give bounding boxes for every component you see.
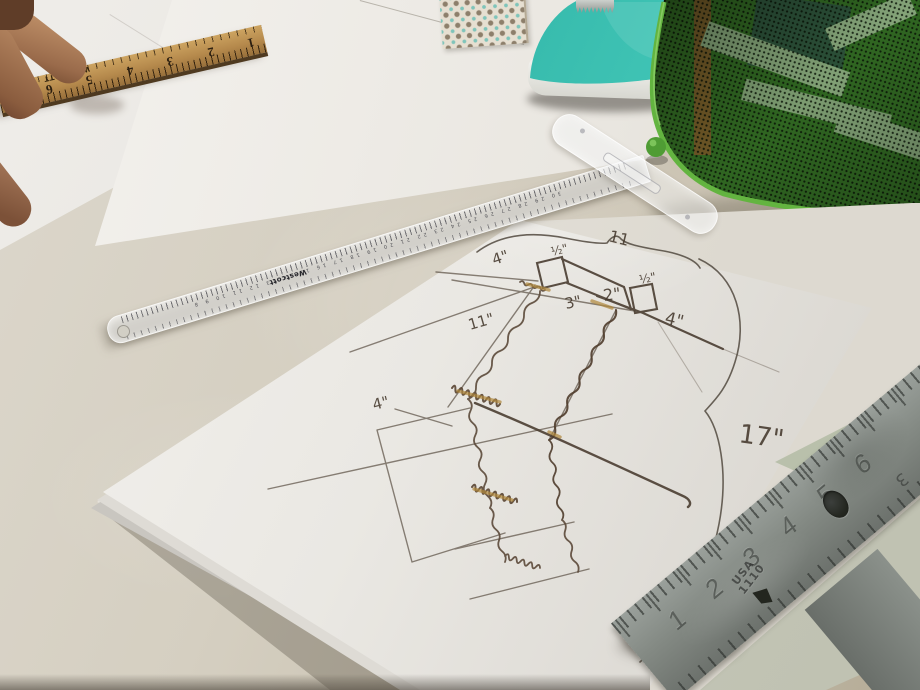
- label-half-inch-right: ½": [638, 270, 658, 287]
- label-top-total: 11: [607, 226, 631, 249]
- label-total-length: 17": [737, 419, 786, 455]
- wavy-cut-line: [549, 440, 563, 520]
- bottom-edge: [470, 569, 589, 599]
- photo-worktable-scene: 7 6 5 4 3 2 1 WESTCOTT: [0, 0, 920, 690]
- t-square-hang-hole: [117, 325, 130, 338]
- tan-stain: [474, 489, 512, 500]
- faded-line: [723, 349, 779, 372]
- pencil-edge-line: [350, 286, 537, 352]
- label-left-length: 11": [466, 309, 496, 333]
- table-edge-shadow: [0, 674, 650, 690]
- t-square-screw: [684, 214, 691, 221]
- label-two-inch: 2": [602, 284, 622, 305]
- stray-pencil-line: [658, 322, 702, 392]
- half-inch-flap: [537, 257, 568, 288]
- tan-stain: [458, 391, 500, 402]
- label-top-left-width: 4": [490, 247, 511, 269]
- inked-long-line: [475, 403, 690, 507]
- label-three-inch: 3": [563, 292, 583, 313]
- bottom-edge: [455, 522, 574, 549]
- pencil-top-edge: [436, 272, 538, 281]
- pencil-fold-line: [268, 414, 612, 489]
- flap-rectangle: [377, 408, 505, 562]
- label-lower-left-width: 4": [371, 392, 391, 413]
- label-right-width: 4": [663, 308, 686, 332]
- inked-edge: [597, 296, 723, 349]
- t-square-screw: [579, 127, 586, 134]
- label-half-inch: ½": [549, 241, 569, 259]
- wavy-cut-line: [562, 520, 579, 572]
- scribble-cluster: [505, 554, 540, 568]
- two-inch-flap-top: [562, 259, 624, 287]
